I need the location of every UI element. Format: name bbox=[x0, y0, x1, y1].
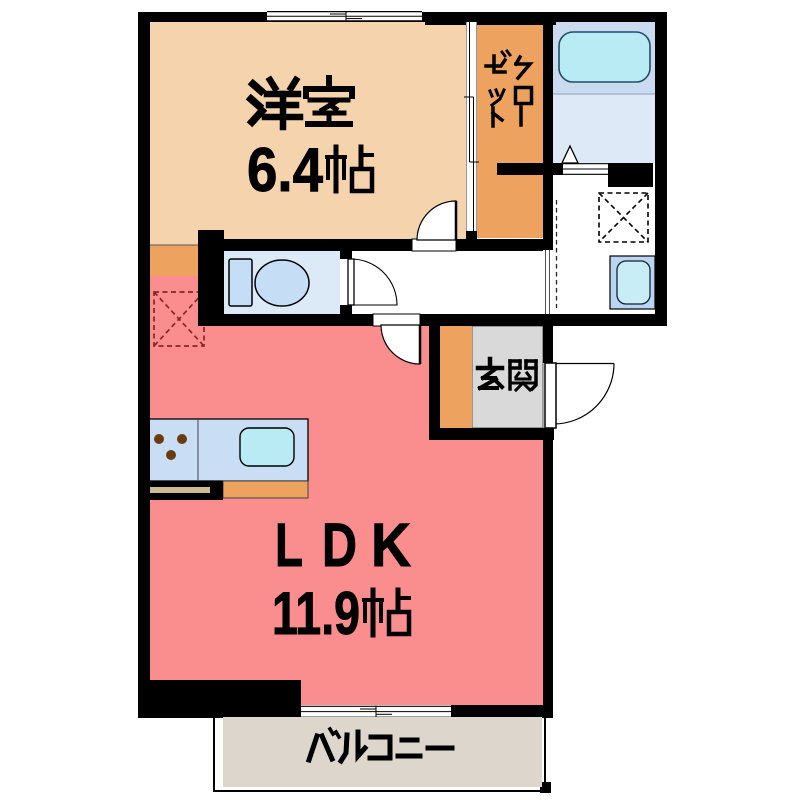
svg-text:K: K bbox=[371, 511, 411, 579]
svg-text:L: L bbox=[275, 511, 303, 579]
svg-text:D: D bbox=[322, 511, 357, 579]
svg-text:6.4: 6.4 bbox=[247, 136, 323, 205]
svg-text:11.9: 11.9 bbox=[272, 580, 360, 647]
